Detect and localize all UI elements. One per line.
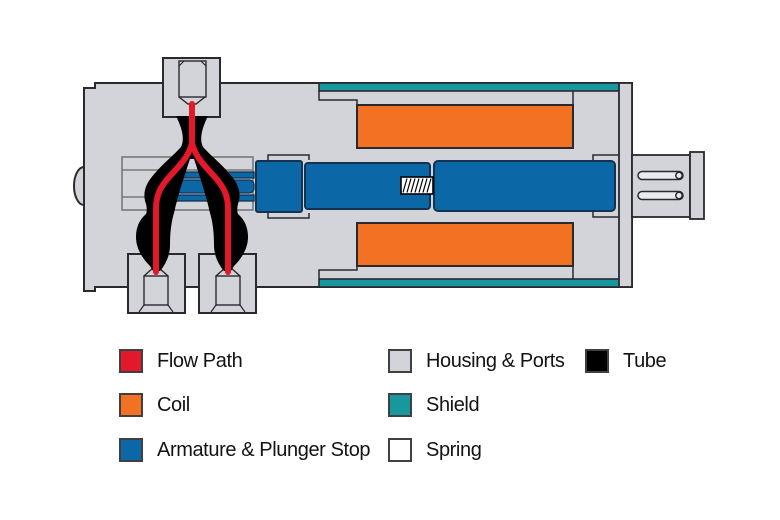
- solenoid-diagram-page: Flow Path Coil Armature & Plunger Stop H…: [0, 0, 780, 520]
- legend-item-housing: Housing & Ports: [388, 349, 565, 373]
- right-extension: [632, 152, 704, 219]
- housing-end-wall: [619, 83, 632, 287]
- legend-item-armature: Armature & Plunger Stop: [119, 438, 370, 462]
- coil-upper: [357, 105, 573, 148]
- legend-item-shield: Shield: [388, 393, 479, 417]
- coil-swatch: [119, 393, 143, 417]
- armature-swatch: [119, 438, 143, 462]
- tube-label: Tube: [623, 349, 666, 373]
- flow-path-label: Flow Path: [157, 349, 242, 373]
- plunger-stop-block: [256, 161, 302, 212]
- extension-end-cap: [690, 152, 704, 219]
- legend-item-tube: Tube: [585, 349, 666, 373]
- shield-swatch: [388, 393, 412, 417]
- legend-item-spring: Spring: [388, 438, 481, 462]
- shield-label: Shield: [426, 393, 479, 417]
- tube-swatch: [585, 349, 609, 373]
- housing-label: Housing & Ports: [426, 349, 565, 373]
- armature-label: Armature & Plunger Stop: [157, 438, 370, 462]
- coil-lower: [357, 223, 573, 266]
- spring: [401, 177, 433, 194]
- legend-item-flow-path: Flow Path: [119, 349, 242, 373]
- spring-label: Spring: [426, 438, 481, 462]
- solenoid-cross-section: [0, 0, 780, 340]
- spring-swatch: [388, 438, 412, 462]
- coil-label: Coil: [157, 393, 190, 417]
- shield-band-bottom: [319, 279, 620, 287]
- left-nose-bump: [74, 167, 84, 205]
- flow-path-swatch: [119, 349, 143, 373]
- shield-band-top: [319, 83, 620, 91]
- armature-right-section: [434, 161, 615, 211]
- legend-item-coil: Coil: [119, 393, 190, 417]
- housing-swatch: [388, 349, 412, 373]
